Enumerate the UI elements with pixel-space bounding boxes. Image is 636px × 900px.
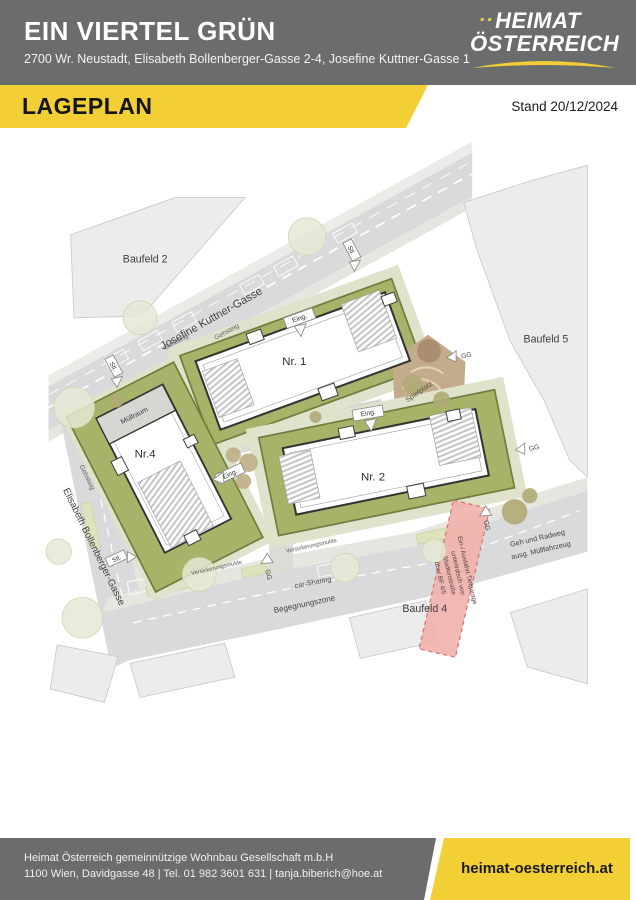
label-nr4: Nr.4	[135, 449, 157, 461]
banner-yellow-ribbon: LAGEPLAN	[0, 85, 428, 128]
logo-swoosh-icon	[470, 56, 618, 70]
heimat-oesterreich-logo: ..HEIMAT ÖSTERREICH	[470, 10, 620, 70]
label-gg-2: GG	[528, 444, 540, 453]
baufeld-4-area-b	[510, 589, 587, 684]
logo-line-1: ..HEIMAT	[470, 10, 620, 33]
label-baufeld-2: Baufeld 2	[123, 254, 168, 266]
project-address: 2700 Wr. Neustadt, Elisabeth Bollenberge…	[24, 52, 470, 66]
section-banner: LAGEPLAN Stand 20/12/2024	[0, 85, 636, 128]
footer-contact-line: 1100 Wien, Davidgasse 48 | Tel. 01 982 3…	[24, 868, 382, 880]
label-baufeld-5: Baufeld 5	[524, 333, 569, 345]
label-gg-1: GG	[461, 351, 473, 360]
footer-company-name: Heimat Österreich gemeinnützige Wohnbau …	[24, 852, 333, 864]
footer-website-badge: heimat-oesterreich.at	[430, 838, 630, 900]
lageplan-page: EIN VIERTEL GRÜN 2700 Wr. Neustadt, Elis…	[0, 0, 636, 900]
label-nr2: Nr. 2	[361, 471, 385, 483]
label-baufeld-4: Baufeld 4	[402, 603, 447, 615]
project-title: EIN VIERTEL GRÜN	[24, 16, 276, 47]
footer-bar: Heimat Österreich gemeinnützige Wohnbau …	[0, 838, 636, 900]
footer-website: heimat-oesterreich.at	[444, 838, 630, 900]
logo-line-2: ÖSTERREICH	[470, 33, 620, 55]
plan-date: Stand 20/12/2024	[511, 85, 618, 128]
logo-dots: ..	[480, 4, 495, 26]
site-plan: Baufeld 2 Baufeld 5 Baufeld 4 Josefine K…	[0, 128, 636, 838]
section-title: LAGEPLAN	[22, 85, 153, 128]
header-bar: EIN VIERTEL GRÜN 2700 Wr. Neustadt, Elis…	[0, 0, 636, 85]
baufeld-area-small	[50, 645, 118, 703]
label-nr1: Nr. 1	[282, 356, 306, 368]
